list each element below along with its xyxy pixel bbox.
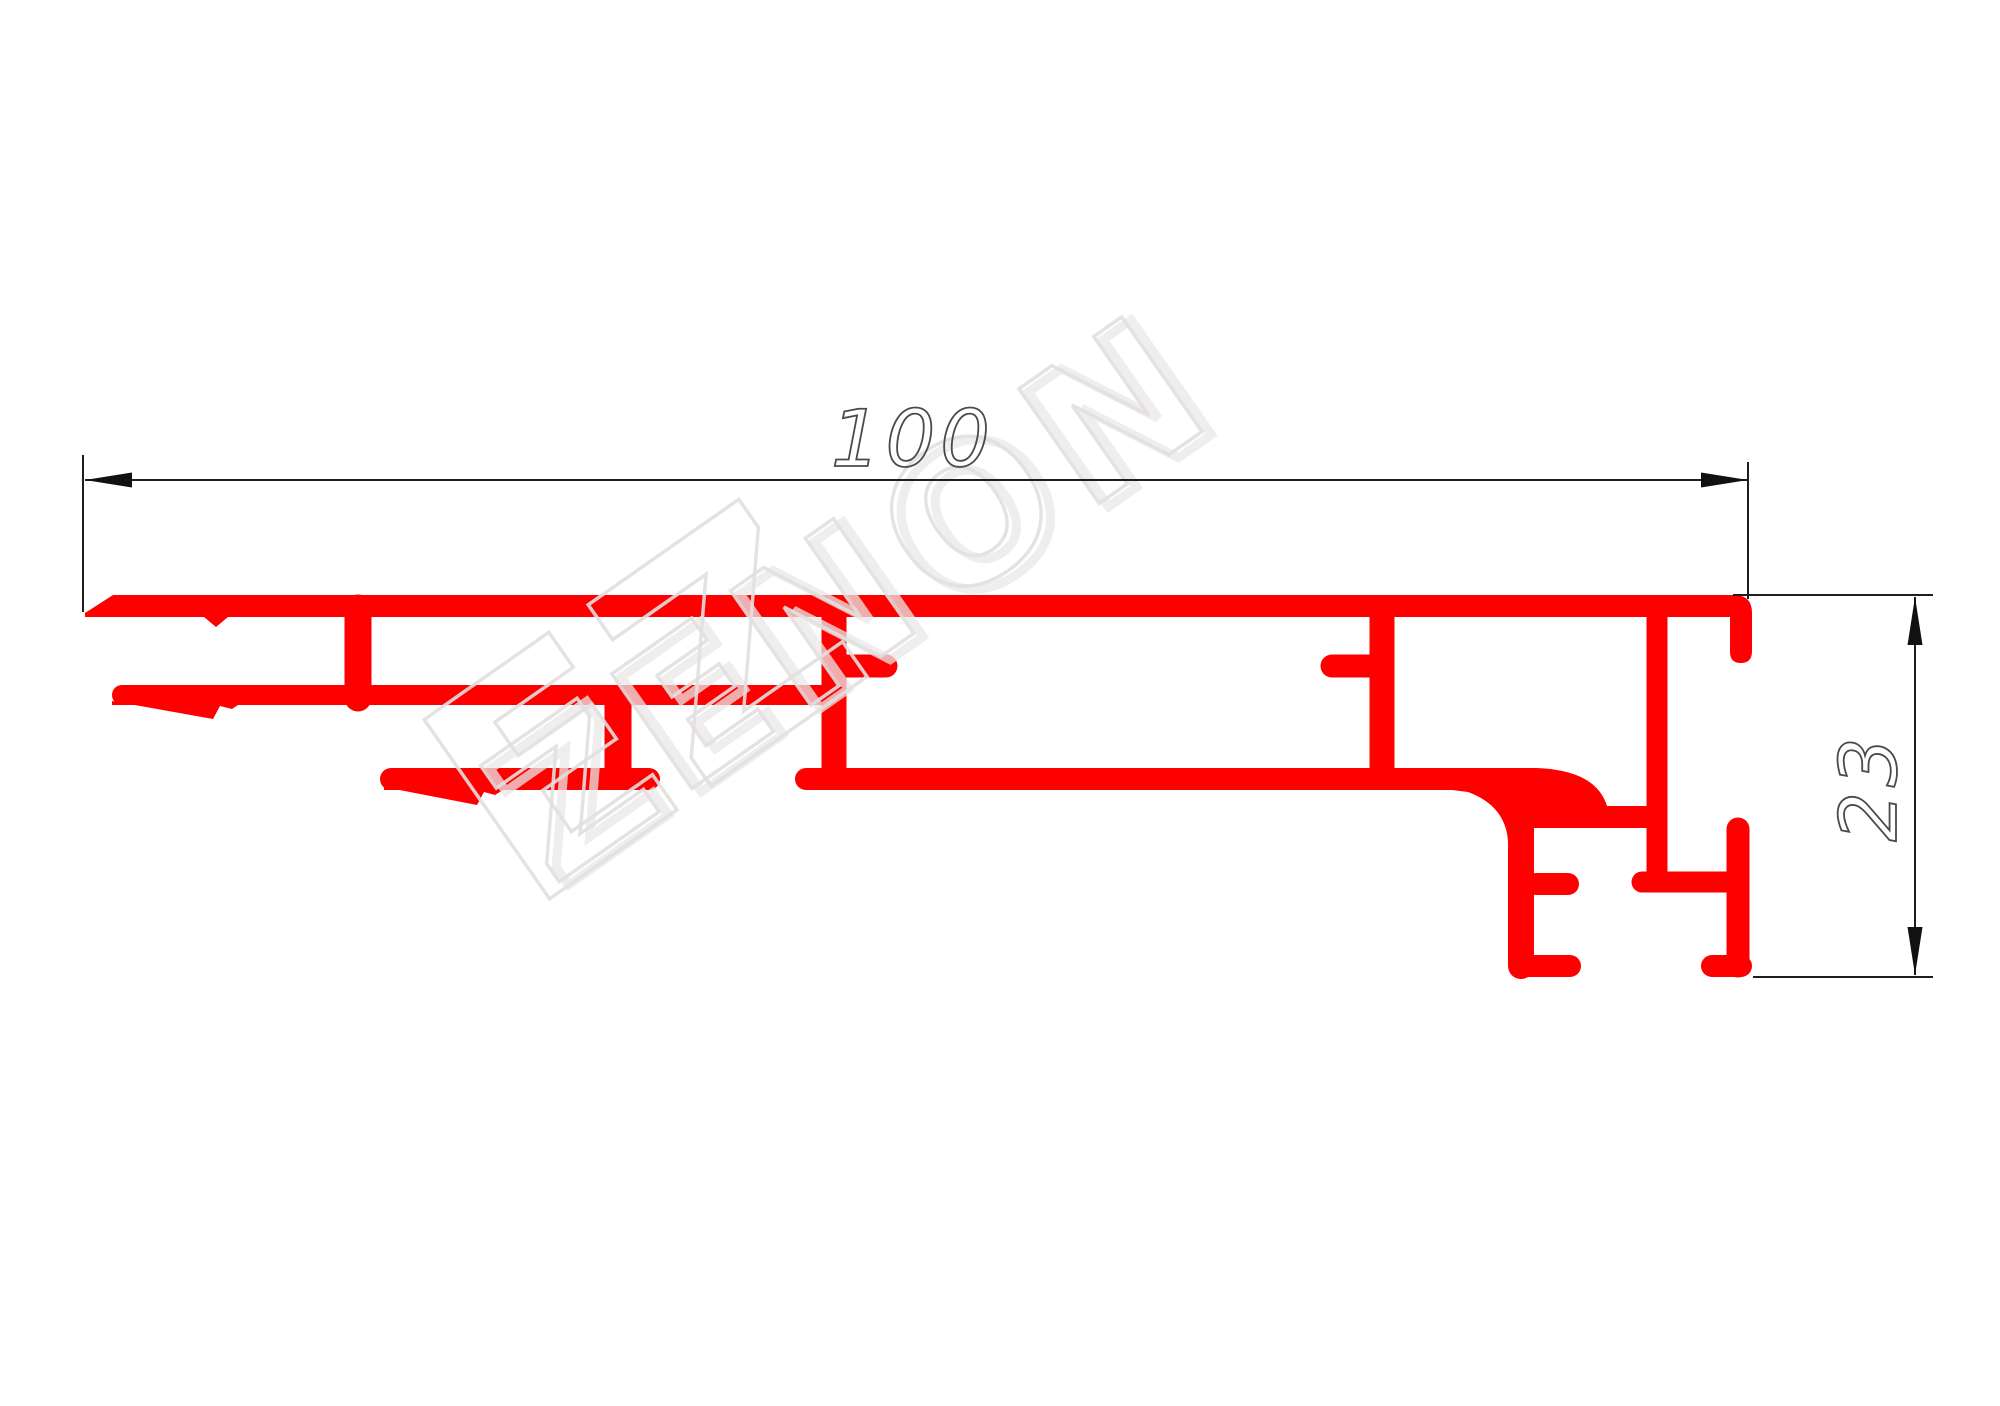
dimension-vertical: 23 (1733, 595, 1933, 977)
dimension-height-label: 23 (1825, 732, 1915, 841)
watermark: ZENON ZENON EZ (368, 265, 1264, 973)
arrow-left (85, 473, 132, 488)
arrow-down (1908, 927, 1923, 975)
drawing-sheet: ZENON ZENON EZ 100 (0, 0, 2000, 1406)
arrow-up (1908, 597, 1923, 645)
dimension-width-label: 100 (831, 395, 995, 485)
profile-drawing-canvas: ZENON ZENON EZ 100 (0, 0, 2000, 1406)
arrow-right (1701, 473, 1748, 488)
flange-tooth (204, 617, 228, 627)
